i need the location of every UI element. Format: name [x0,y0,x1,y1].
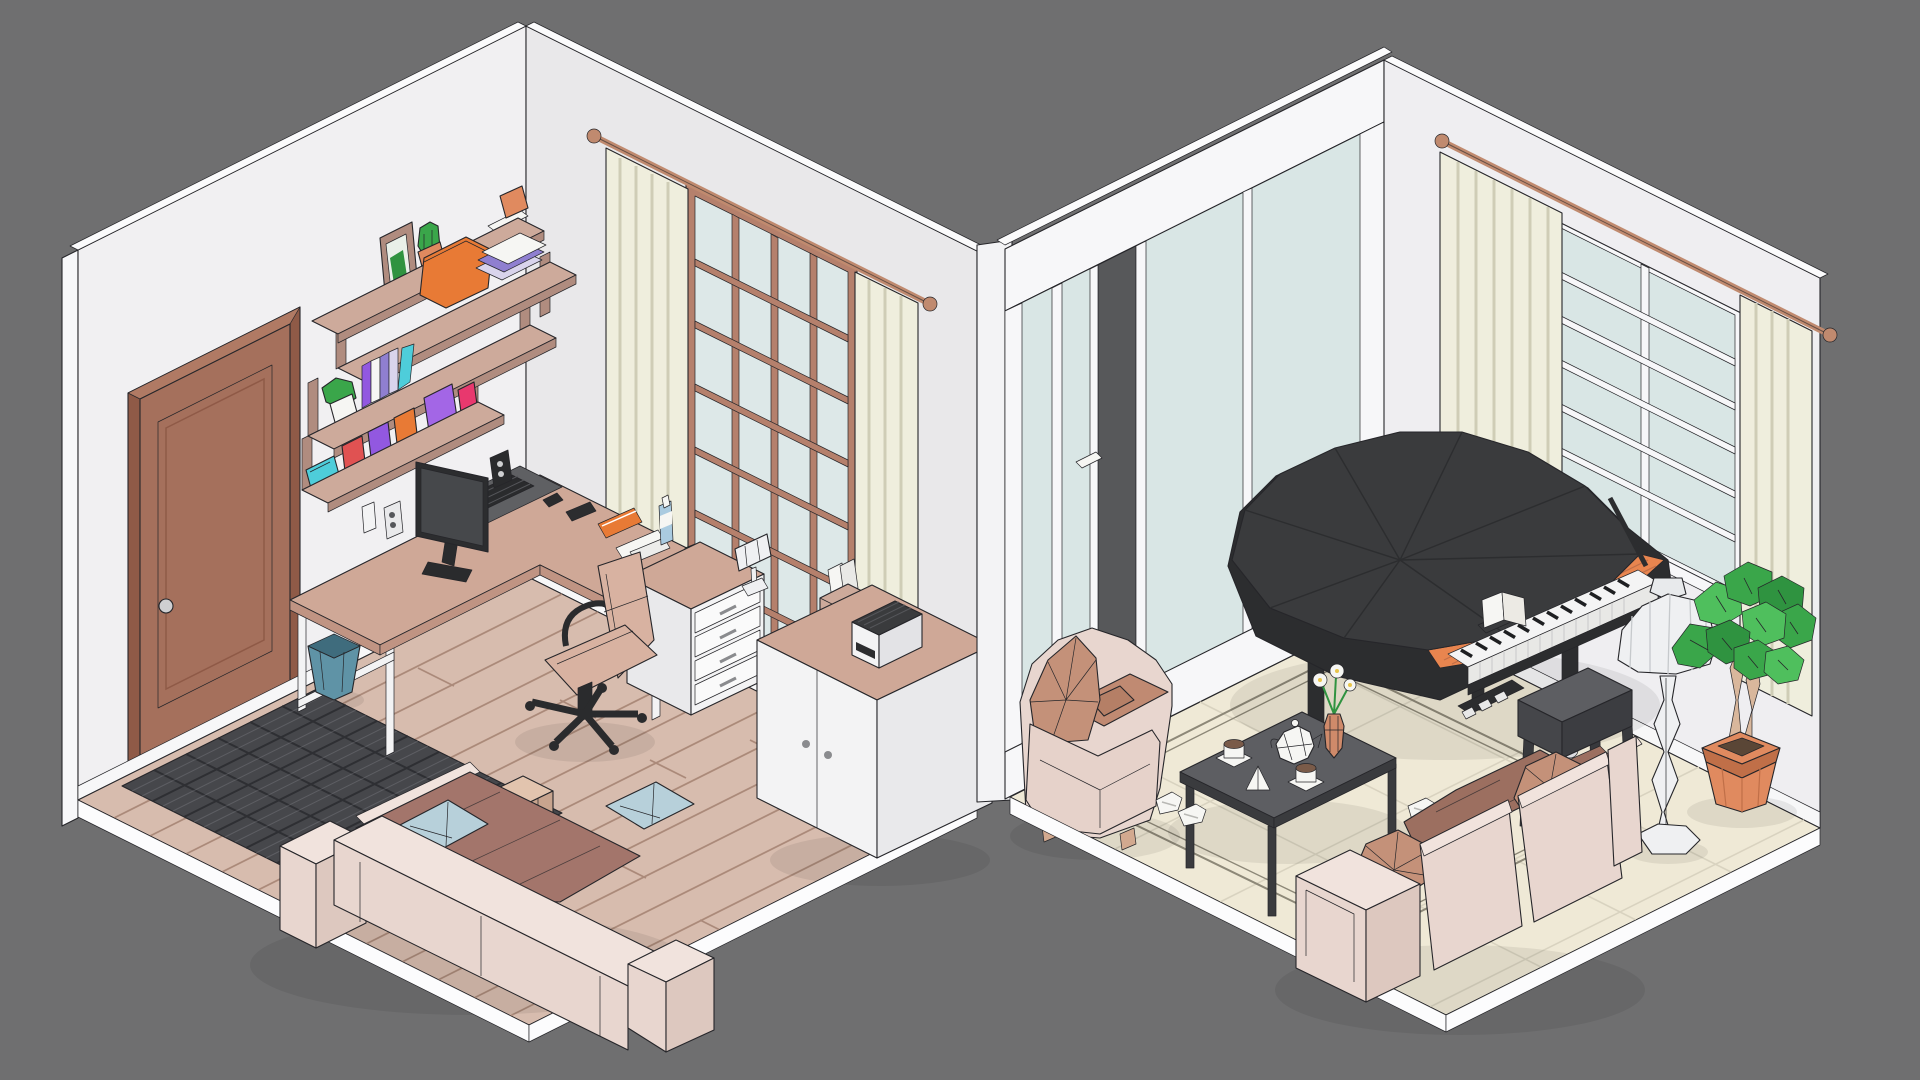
scene-canvas [0,0,1920,1080]
left-wall-outer-edge [62,250,78,826]
isometric-room-render [0,0,1920,1080]
sofa-right-arm-right [1608,736,1642,866]
cabinet-knob-left [802,740,810,748]
curtain-panel-left [606,148,688,572]
cabinet-knob-right [824,751,832,759]
trash-bin [308,634,360,700]
door-knob [159,599,173,613]
rod-finial-right [923,297,937,311]
rod-finial-left [587,129,601,143]
wall-outlet [362,502,376,533]
speaker-left [384,501,403,539]
